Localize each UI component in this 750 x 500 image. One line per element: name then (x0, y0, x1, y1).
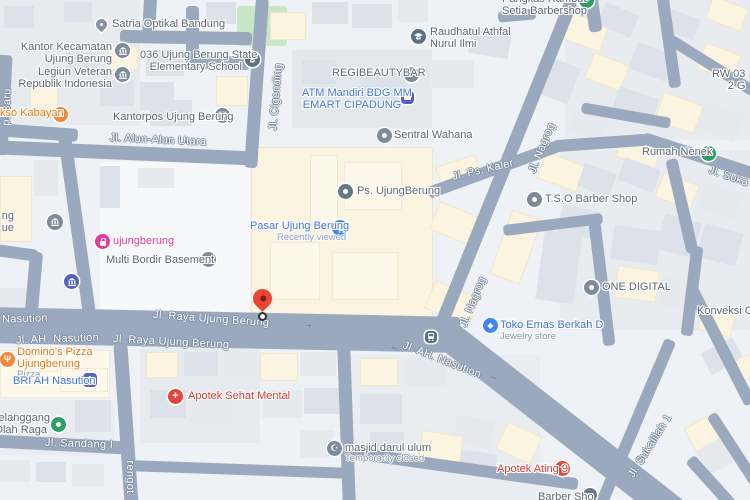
poi-label-atm[interactable]: ATM Mandiri BDG MM EMART CIPADUNG (302, 88, 402, 111)
building (4, 6, 34, 28)
poi-label-pasar[interactable]: Pasar Ujung Berung (250, 221, 349, 233)
poi-label-apotek-sehat[interactable]: Apotek Sehat Mental (188, 391, 290, 403)
one-way-arrow-icon: → (303, 320, 313, 330)
building (304, 388, 340, 414)
poi-sub-pasar: Recently viewed (277, 233, 346, 243)
poi-label-legiun[interactable]: Legiun Veteran Republik Indonesia (8, 67, 112, 90)
building (430, 60, 474, 88)
building (72, 464, 104, 486)
poi-label-satria[interactable]: Satria Optikal Bandung (112, 19, 225, 31)
poi-label-apotek-ating[interactable]: Apotek Ating 9 (497, 464, 568, 476)
generic-poi-icon[interactable] (377, 128, 392, 143)
poi-label-dominos[interactable]: Domino's Pizza Ujungberung (17, 347, 92, 370)
pizza-restaurant-icon[interactable]: Ψ (0, 352, 15, 367)
government-office-icon[interactable] (115, 43, 130, 58)
poi-label-ps-ujungberung[interactable]: Ps. UjungBerung (357, 186, 440, 198)
building (360, 394, 402, 424)
street-label: Jl. Cigending (267, 62, 285, 133)
building (222, 354, 250, 376)
institution-icon[interactable] (47, 214, 63, 230)
building (216, 76, 248, 106)
poi-label-toko-emas[interactable]: Toko Emas Berkah D (500, 320, 603, 332)
poi-sub-toko-emas: Jewelry store (500, 332, 556, 342)
poi-label-rumah-nenek[interactable]: Rumah Nenek (642, 147, 712, 159)
mosque-icon[interactable]: ☪ (327, 441, 342, 456)
building (0, 460, 30, 482)
location-dot-icon (258, 312, 267, 321)
building (360, 358, 398, 386)
generic-poi-icon[interactable] (584, 280, 599, 295)
bag-glyph (100, 241, 106, 246)
pharmacy-icon[interactable]: + (168, 389, 183, 404)
poi-sub-masjid: Temporarily closed (345, 454, 424, 464)
building (260, 353, 298, 381)
shopping-bag-icon[interactable] (95, 234, 110, 249)
poi-label-gelanggang[interactable]: Gelanggang Olah Raga (0, 413, 47, 436)
poi-label-multi-bordir[interactable]: Multi Bordir Basement (106, 255, 214, 267)
poi-label-bri[interactable]: BRI AH Nasution (13, 376, 96, 388)
building (312, 2, 348, 24)
bus-stop-icon[interactable] (425, 331, 437, 343)
building (75, 400, 111, 432)
poi-label-pangkas[interactable]: Pangkas Rambut Setia Barbershop (502, 0, 587, 17)
building (64, 2, 92, 22)
street-label: Nasution (2, 312, 48, 326)
institution-icon[interactable] (115, 67, 130, 82)
poi-label-konveksi[interactable]: Konveksi Car (697, 306, 750, 318)
building (332, 252, 398, 300)
poi-label-ujungberung-store[interactable]: ujungberung (113, 236, 174, 248)
jewelry-icon[interactable]: ◆ (483, 318, 498, 333)
street-label: rengot (124, 447, 136, 500)
poi-label-regi[interactable]: REGIBEAUTYBAR (332, 68, 426, 80)
building (270, 12, 306, 40)
building (36, 462, 66, 482)
building (34, 160, 58, 196)
building (300, 352, 336, 376)
poi-label-bakso[interactable]: kso Kabayan (0, 108, 64, 120)
building (138, 168, 174, 188)
street-label: Jl. Sandang I (45, 437, 114, 451)
road (58, 136, 97, 322)
poi-label-kecamatan[interactable]: Kantor Kecamatan Ujung Berung (8, 42, 112, 65)
building (302, 60, 336, 84)
building (352, 4, 392, 28)
market-poi-icon[interactable] (338, 184, 353, 199)
map-canvas[interactable]: Jl. Alun-Alun Utara Jl. Cigending Jl. Ps… (0, 0, 750, 500)
building (184, 352, 218, 376)
kindergarten-school-icon[interactable] (411, 29, 426, 44)
building (310, 155, 338, 223)
poi-label-tso[interactable]: T.S.O Barber Shop (545, 194, 637, 206)
poi-label-one-digital[interactable]: ONE DIGITAL (602, 282, 671, 294)
building (100, 166, 120, 208)
building (610, 225, 662, 265)
poi-label-sentral[interactable]: Sentral Wahana (394, 130, 472, 142)
one-way-arrow-icon: ← (389, 342, 402, 355)
bank-icon[interactable] (64, 274, 79, 289)
generic-poi-icon[interactable] (527, 192, 542, 207)
road (133, 460, 347, 478)
building (398, 0, 428, 22)
poi-label-barber-partial[interactable]: Barber Sho (538, 492, 594, 500)
poi-label-school036[interactable]: 036 Ujung Berung State Elementary School (140, 50, 242, 73)
building (146, 352, 178, 378)
building (270, 242, 320, 300)
poi-label-edge-partial[interactable]: ng ue (0, 211, 14, 234)
poi-label-raudhatul[interactable]: Raudhatul Athfal Nurul Ilmi (430, 27, 511, 50)
sports-poi-icon[interactable] (51, 417, 66, 432)
poi-label-kantorpos[interactable]: Kantorpos Ujung Berung (113, 112, 233, 124)
area-label-rw: RW 03 2 G (712, 69, 745, 92)
